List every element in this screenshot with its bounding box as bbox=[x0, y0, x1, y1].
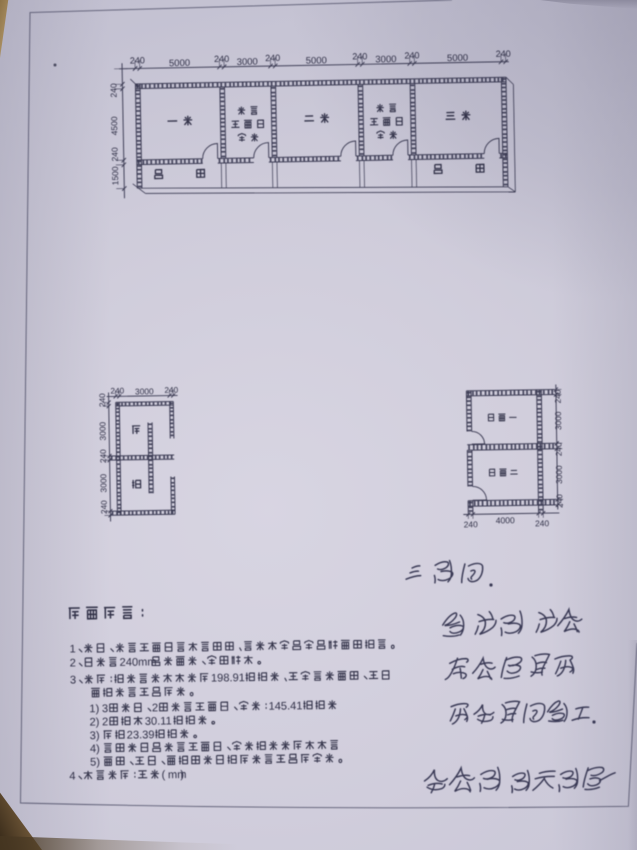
svg-text:3: 3 bbox=[102, 703, 108, 715]
svg-text:3000: 3000 bbox=[97, 421, 107, 440]
svg-text:4500: 4500 bbox=[109, 116, 119, 135]
svg-text:): ) bbox=[95, 703, 99, 715]
svg-text:3000: 3000 bbox=[237, 57, 258, 68]
svg-text:3000: 3000 bbox=[375, 54, 396, 65]
svg-text:240mm: 240mm bbox=[120, 656, 157, 669]
svg-text:3000: 3000 bbox=[553, 411, 563, 430]
svg-text:240: 240 bbox=[265, 53, 280, 63]
svg-text:5000: 5000 bbox=[447, 53, 468, 64]
svg-text:2: 2 bbox=[152, 702, 158, 714]
svg-text:240: 240 bbox=[554, 389, 563, 403]
svg-text:240: 240 bbox=[464, 519, 478, 529]
svg-text:240: 240 bbox=[110, 147, 120, 162]
svg-text:3000: 3000 bbox=[554, 465, 564, 484]
svg-text:4: 4 bbox=[69, 770, 75, 782]
svg-text:2: 2 bbox=[102, 716, 108, 728]
svg-text:(: ( bbox=[162, 769, 166, 781]
svg-text:): ) bbox=[180, 769, 184, 781]
svg-text:145.41: 145.41 bbox=[268, 700, 302, 712]
svg-text:30.11: 30.11 bbox=[145, 715, 172, 727]
svg-text:198.91: 198.91 bbox=[211, 672, 245, 684]
svg-text:3000: 3000 bbox=[135, 386, 154, 396]
svg-text:240: 240 bbox=[164, 386, 178, 395]
svg-text:3000: 3000 bbox=[98, 473, 108, 492]
svg-text:240: 240 bbox=[98, 393, 107, 407]
svg-text:4000: 4000 bbox=[496, 515, 515, 525]
svg-text:240: 240 bbox=[496, 49, 511, 59]
svg-text:5000: 5000 bbox=[169, 58, 190, 69]
svg-text:2: 2 bbox=[70, 657, 76, 669]
svg-text:): ) bbox=[96, 730, 100, 742]
svg-text:3: 3 bbox=[70, 674, 76, 686]
svg-text:240: 240 bbox=[404, 50, 419, 60]
svg-text:1: 1 bbox=[69, 643, 75, 655]
svg-text:1500: 1500 bbox=[110, 166, 120, 185]
svg-text:240: 240 bbox=[110, 386, 124, 395]
svg-text:): ) bbox=[96, 756, 100, 768]
svg-text:240: 240 bbox=[100, 500, 109, 514]
svg-text:): ) bbox=[96, 716, 100, 728]
svg-text:): ) bbox=[96, 743, 100, 755]
svg-text:240: 240 bbox=[535, 518, 549, 528]
svg-text:240: 240 bbox=[554, 442, 563, 456]
svg-text:240: 240 bbox=[555, 494, 564, 508]
svg-text:240: 240 bbox=[108, 83, 118, 98]
svg-text:240: 240 bbox=[130, 55, 145, 65]
svg-text:240: 240 bbox=[99, 449, 108, 463]
svg-text:23.39: 23.39 bbox=[127, 729, 155, 741]
svg-text:240: 240 bbox=[214, 54, 229, 64]
svg-text:5000: 5000 bbox=[306, 55, 327, 66]
svg-text:240: 240 bbox=[352, 51, 367, 61]
